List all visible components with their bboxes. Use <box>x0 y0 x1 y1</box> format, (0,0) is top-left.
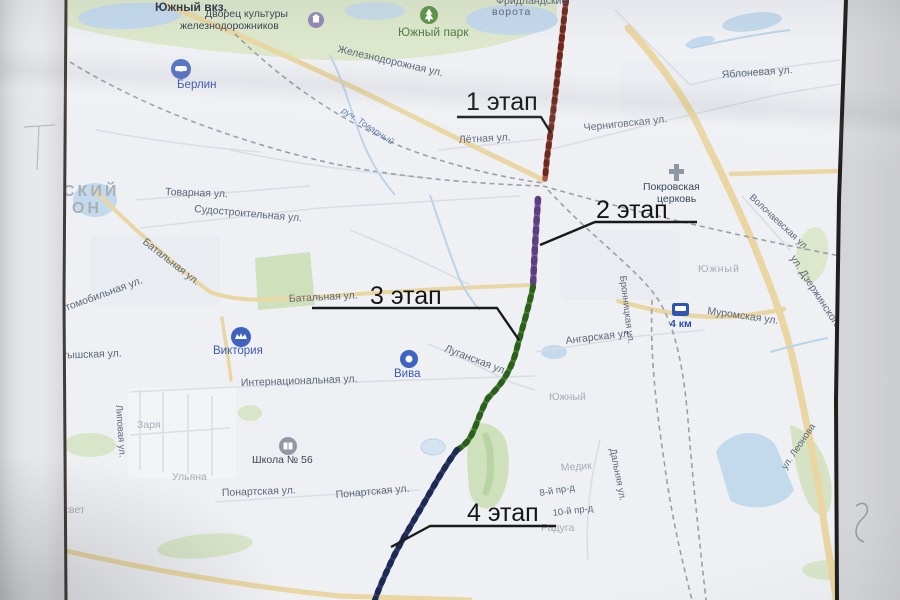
district-label: Радуга <box>541 522 574 534</box>
district-label: Ульяна <box>172 471 207 483</box>
stage-1-label: 1 этап <box>466 88 538 116</box>
map-canvas: Южный вкз. Дворец культуры железнодорожн… <box>0 0 900 600</box>
viktoria-store-icon <box>231 327 251 347</box>
left-sheet-shade <box>0 0 66 600</box>
culture-palace-icon <box>308 12 324 28</box>
district-label-clipped: ОН <box>72 200 102 217</box>
stage-2-label: 2 этап <box>596 196 668 224</box>
poi-label: Школа № 56 <box>252 454 313 466</box>
district-label: Медик <box>560 460 592 474</box>
poi-label: Покровская <box>643 181 700 193</box>
poi-label: Виктория <box>213 345 263 357</box>
viva-store-icon <box>400 350 418 368</box>
poi-label: Дворец культуры <box>205 8 288 20</box>
rail-platform-4km-icon <box>672 303 689 316</box>
district-label-clipped: СКИЙ <box>63 181 119 200</box>
poi-label: Вива <box>394 368 421 380</box>
poi-label: Южный парк <box>398 25 469 39</box>
stage-3-label: 3 этап <box>370 282 442 310</box>
school-icon <box>279 437 297 455</box>
park-tree-icon <box>420 6 438 24</box>
street-label: Товарная ул. <box>165 186 228 200</box>
district-label: Южный <box>698 263 740 275</box>
berlin-poi-icon <box>171 59 191 79</box>
stage-4-label: 4 этап <box>467 499 539 527</box>
poi-label: Берлин <box>177 79 216 91</box>
photo-of-printed-map: Южный вкз. Дворец культуры железнодорожн… <box>0 0 900 600</box>
district-label: Южный <box>549 391 586 403</box>
station-label: 4 км <box>670 318 692 330</box>
poi-label: ворота <box>492 6 531 18</box>
district-label: Заря <box>137 419 161 431</box>
poi-label: железнодорожников <box>180 20 279 32</box>
